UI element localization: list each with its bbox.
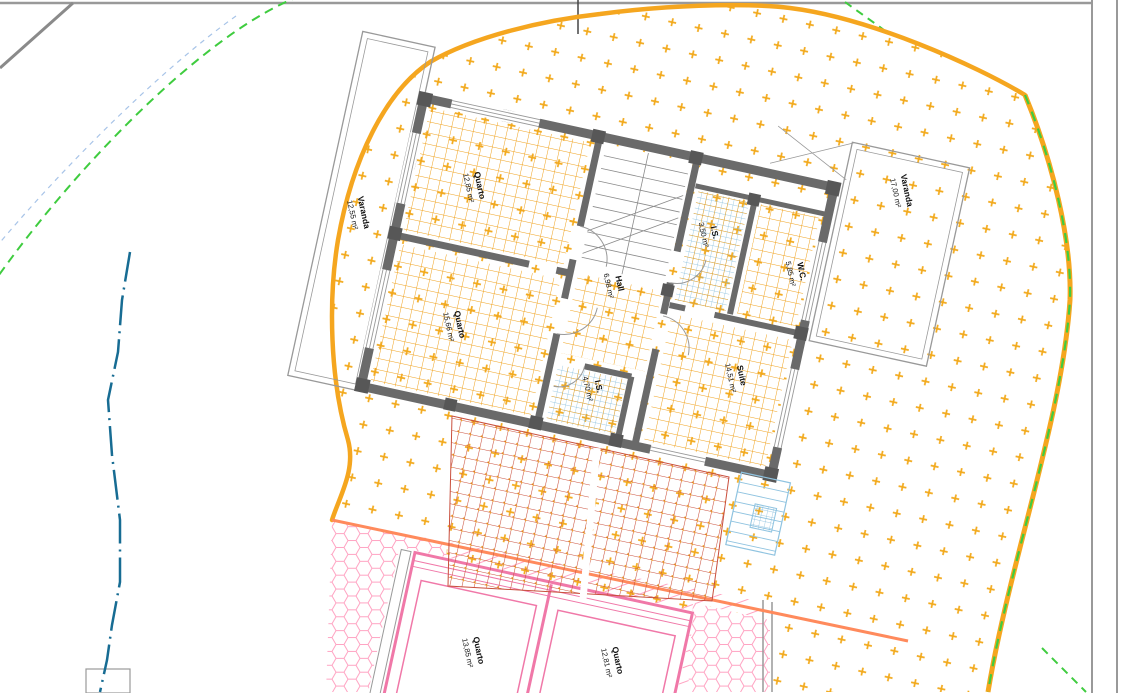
- corner-diagonal-line: [0, 3, 73, 68]
- site-plan-svg: Varanda 12,55 m² Quarto 12,85 m² Quarto …: [0, 0, 1130, 693]
- blue-landing-tiles: [750, 504, 777, 532]
- green-contour-dashed-line: [0, 0, 300, 282]
- bottom-left-marker-box: [86, 669, 130, 693]
- green-dashed-segment-bottom: [1042, 648, 1086, 692]
- drawing-canvas[interactable]: Varanda 12,55 m² Quarto 12,85 m² Quarto …: [0, 0, 1130, 693]
- teal-utility-dashdot-line: [100, 252, 130, 692]
